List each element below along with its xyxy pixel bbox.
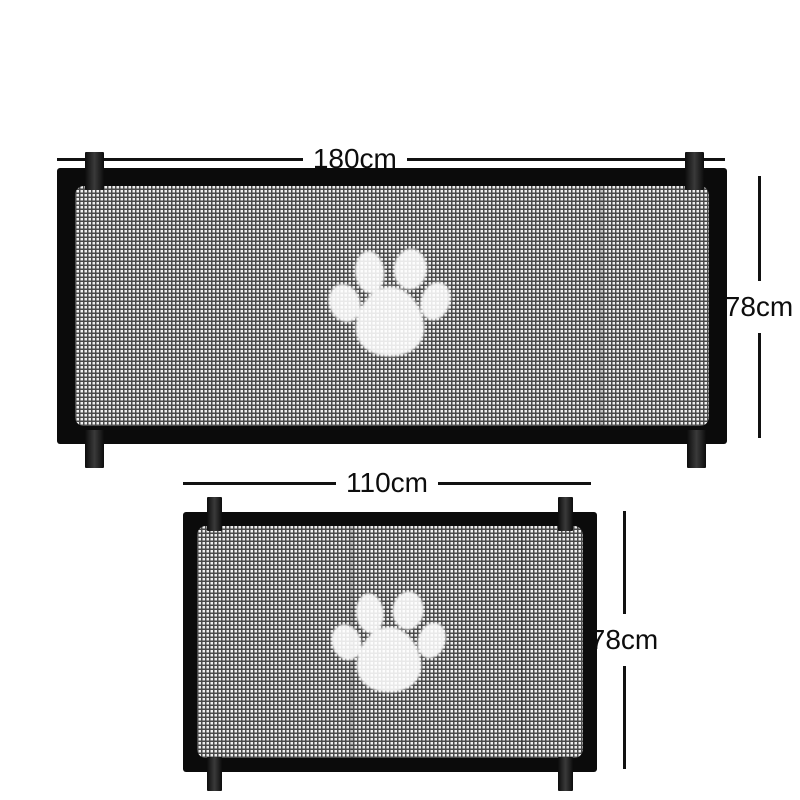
dimension-line-bottom [623, 666, 626, 769]
dimension-width-small: 110cm [183, 468, 591, 498]
dimension-line-right [438, 482, 591, 485]
mounting-strap-top-left [207, 497, 222, 531]
mesh-seam [601, 186, 603, 426]
large-gate [57, 168, 727, 444]
dimension-height-large: 78cm [728, 176, 790, 438]
dimension-line-left [183, 482, 336, 485]
mounting-strap-top-right [685, 152, 704, 190]
dimension-height-small-label: 78cm [590, 614, 658, 666]
mounting-strap-top-right [558, 497, 573, 531]
dimension-line-bottom [758, 333, 761, 438]
mounting-strap-bottom-left [85, 430, 104, 468]
dimension-line-right [407, 158, 725, 161]
mounting-strap-bottom-left [207, 757, 222, 791]
product-size-diagram: 180cm 78cm 110cm [0, 0, 800, 800]
small-gate [183, 512, 597, 772]
dimension-line-top [623, 511, 626, 614]
paw-print-icon [327, 248, 453, 364]
dimension-width-small-label: 110cm [336, 469, 438, 497]
paw-print-icon [330, 588, 448, 702]
dimension-height-large-label: 78cm [725, 281, 793, 333]
dimension-height-small: 78cm [592, 511, 656, 769]
mounting-strap-top-left [85, 152, 104, 190]
mesh-seam [521, 526, 523, 758]
dimension-line-top [758, 176, 761, 281]
mounting-strap-bottom-right [687, 430, 706, 468]
mounting-strap-bottom-right [558, 757, 573, 791]
